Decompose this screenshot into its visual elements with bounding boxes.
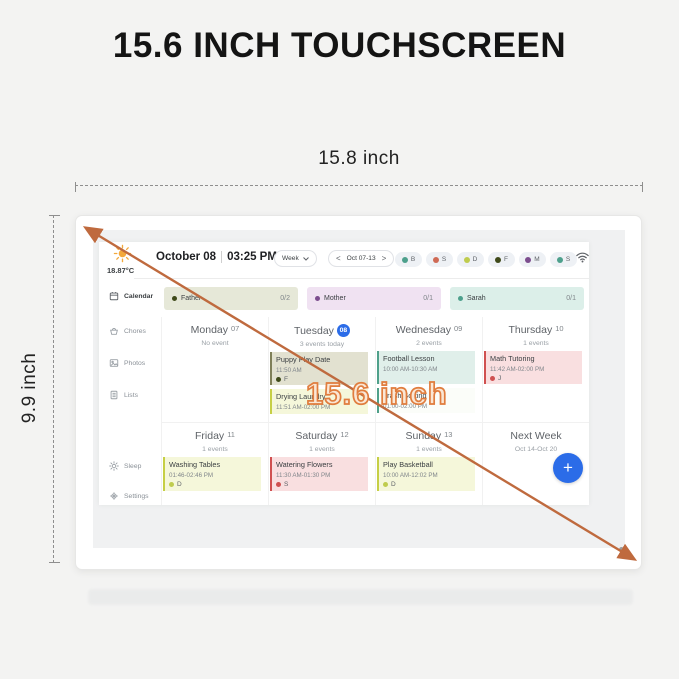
avatar-label: M bbox=[534, 256, 539, 263]
event-card[interactable]: Play Basketball 10:00 AM-12:02 PM D bbox=[377, 457, 475, 491]
sun-weather-icon bbox=[113, 244, 132, 263]
filter-chip-father[interactable]: Father 0/2 bbox=[164, 287, 298, 310]
member-color-dot bbox=[464, 257, 470, 263]
avatar[interactable]: S bbox=[550, 252, 577, 267]
event-title: Play Basketball bbox=[383, 460, 471, 469]
sidebar-item-label: Sleep bbox=[124, 463, 141, 470]
event-time: 10:00 AM-12:02 PM bbox=[383, 472, 471, 479]
sidebar-item-label: Calendar bbox=[124, 293, 153, 300]
basket-icon bbox=[109, 326, 119, 336]
member-color-dot bbox=[402, 257, 408, 263]
next-week-label: Next Week bbox=[510, 430, 561, 442]
day-summary: 2 events bbox=[376, 340, 482, 347]
brightness-icon bbox=[109, 461, 119, 471]
day-name: Tuesday bbox=[294, 325, 334, 337]
day-name: Thursday bbox=[508, 324, 552, 336]
day-number: 12 bbox=[340, 430, 348, 439]
tick bbox=[642, 182, 643, 192]
week-range-label: Oct 07-13 bbox=[347, 255, 376, 262]
member-color-dot bbox=[490, 376, 495, 381]
avatar-label: D bbox=[473, 256, 478, 263]
event-card[interactable]: Washing Tables 01:46-02:46 PM D bbox=[163, 457, 261, 491]
day-column-monday[interactable]: Monday07 No event bbox=[161, 317, 268, 422]
day-number: 10 bbox=[555, 324, 563, 333]
avatar-label: F bbox=[504, 256, 508, 263]
day-column-thursday[interactable]: Thursday10 1 events Math Tutoring 11:42 … bbox=[482, 317, 589, 422]
event-title: Football Lesson bbox=[383, 354, 471, 363]
event-time: 11:42 AM-02:00 PM bbox=[490, 366, 578, 373]
day-number: 09 bbox=[454, 324, 462, 333]
sidebar-item-sleep[interactable]: Sleep bbox=[109, 461, 141, 471]
current-time: 03:25 PM bbox=[227, 251, 277, 263]
event-time: 01:46-02:46 PM bbox=[169, 472, 257, 479]
sidebar-item-chores[interactable]: Chores bbox=[109, 326, 146, 336]
day-summary: 1 events bbox=[376, 446, 482, 453]
member-color-dot bbox=[495, 257, 501, 263]
filter-count: 0/1 bbox=[566, 295, 576, 302]
member-color-dot bbox=[433, 257, 439, 263]
member-color-dot bbox=[383, 482, 388, 487]
calendar-app-screen: 18.87°C October 08 03:25 PM Week < Oct 0… bbox=[99, 242, 589, 505]
filter-chip-sarah[interactable]: Sarah 0/1 bbox=[450, 287, 584, 310]
sidebar-item-label: Photos bbox=[124, 360, 145, 367]
event-person: J bbox=[498, 375, 501, 382]
day-number: 11 bbox=[227, 430, 235, 439]
height-dimension-label: 9.9 inch bbox=[19, 353, 41, 424]
sidebar-item-settings[interactable]: Settings bbox=[109, 491, 149, 501]
day-summary: 1 events bbox=[162, 446, 268, 453]
day-column-saturday[interactable]: Saturday12 1 events Watering Flowers 11:… bbox=[268, 423, 375, 505]
page-title: 15.6 INCH TOUCHSCREEN bbox=[0, 26, 679, 66]
event-card[interactable]: Watering Flowers 11:30 AM-01:30 PM S bbox=[270, 457, 368, 491]
day-number: 13 bbox=[444, 430, 452, 439]
member-color-dot bbox=[315, 296, 320, 301]
day-column-friday[interactable]: Friday11 1 events Washing Tables 01:46-0… bbox=[161, 423, 268, 505]
member-color-dot bbox=[169, 482, 174, 487]
event-time: 10:00 AM-10:30 AM bbox=[383, 366, 471, 373]
sidebar-item-calendar[interactable]: Calendar bbox=[109, 291, 153, 301]
day-summary: 3 events today bbox=[269, 341, 375, 348]
view-selector-value: Week bbox=[282, 255, 299, 262]
member-color-dot bbox=[557, 257, 563, 263]
day-name: Friday bbox=[195, 430, 224, 442]
day-summary: 1 events bbox=[269, 446, 375, 453]
avatar-label: S bbox=[566, 256, 570, 263]
gear-icon bbox=[109, 491, 119, 501]
member-color-dot bbox=[525, 257, 531, 263]
day-name: Wednesday bbox=[396, 324, 451, 336]
chevron-down-icon bbox=[303, 257, 309, 261]
day-name: Saturday bbox=[295, 430, 337, 442]
camera-dot bbox=[619, 547, 624, 552]
avatar[interactable]: D bbox=[457, 252, 484, 267]
diagonal-dimension-label: 15.6 inch bbox=[306, 376, 448, 412]
member-color-dot bbox=[276, 482, 281, 487]
filter-count: 0/1 bbox=[423, 295, 433, 302]
member-color-dot bbox=[458, 296, 463, 301]
avatar-label: S bbox=[442, 256, 446, 263]
day-summary: No event bbox=[162, 340, 268, 347]
day-number: 07 bbox=[231, 324, 239, 333]
surface-reflection bbox=[88, 589, 633, 605]
height-dimension-line bbox=[53, 215, 54, 563]
wifi-icon bbox=[576, 252, 589, 263]
day-summary: 1 events bbox=[483, 340, 589, 347]
sidebar-item-label: Lists bbox=[124, 392, 138, 399]
calendar-icon bbox=[109, 291, 119, 301]
divider bbox=[221, 251, 222, 263]
event-person: D bbox=[177, 481, 182, 488]
sidebar-item-label: Chores bbox=[124, 328, 146, 335]
filter-name: Mother bbox=[324, 295, 346, 302]
current-date: October 08 bbox=[156, 251, 216, 263]
event-title: Puppy Play Date bbox=[276, 355, 364, 364]
tick bbox=[75, 182, 76, 192]
temperature-readout: 18.87°C bbox=[107, 266, 134, 275]
event-person: F bbox=[284, 376, 288, 383]
prev-week-button[interactable]: < bbox=[336, 254, 341, 263]
avatar[interactable]: B bbox=[395, 252, 422, 267]
next-week-column[interactable]: Next Week Oct 14-Oct 20 + bbox=[482, 423, 589, 505]
event-title: Washing Tables bbox=[169, 460, 257, 469]
filter-count: 0/2 bbox=[280, 295, 290, 302]
week-range-navigator: < Oct 07-13 > bbox=[328, 250, 394, 267]
sidebar-item-label: Settings bbox=[124, 493, 149, 500]
view-selector-dropdown[interactable]: Week bbox=[274, 250, 317, 267]
add-event-button[interactable]: + bbox=[553, 453, 583, 483]
avatar-label: B bbox=[411, 256, 415, 263]
filter-chip-mother[interactable]: Mother 0/1 bbox=[307, 287, 441, 310]
day-name: Sunday bbox=[406, 430, 442, 442]
date-time: October 08 03:25 PM bbox=[156, 251, 277, 263]
filter-name: Father bbox=[181, 295, 201, 302]
event-person: D bbox=[391, 481, 396, 488]
avatar[interactable]: M bbox=[519, 252, 546, 267]
member-color-dot bbox=[276, 377, 281, 382]
sidebar-item-lists[interactable]: Lists bbox=[109, 390, 138, 400]
next-week-range: Oct 14-Oct 20 bbox=[483, 446, 589, 453]
photo-icon bbox=[109, 358, 119, 368]
event-time: 11:50 AM bbox=[276, 367, 364, 374]
next-week-button[interactable]: > bbox=[382, 254, 387, 263]
list-icon bbox=[109, 390, 119, 400]
tick bbox=[49, 562, 60, 563]
width-dimension-label: 15.8 inch bbox=[75, 148, 643, 170]
today-badge: 08 bbox=[337, 324, 350, 337]
event-card[interactable]: Math Tutoring 11:42 AM-02:00 PM J bbox=[484, 351, 582, 384]
avatar[interactable]: S bbox=[426, 252, 453, 267]
tick bbox=[49, 215, 60, 216]
member-avatars: B S D F M S bbox=[395, 252, 577, 267]
event-time: 11:30 AM-01:30 PM bbox=[276, 472, 364, 479]
day-name: Monday bbox=[191, 324, 228, 336]
event-title: Math Tutoring bbox=[490, 354, 578, 363]
header-divider bbox=[134, 278, 589, 279]
width-dimension-line bbox=[75, 185, 643, 186]
avatar[interactable]: F bbox=[488, 252, 515, 267]
event-title: Watering Flowers bbox=[276, 460, 364, 469]
event-person: S bbox=[284, 481, 288, 488]
day-column-sunday[interactable]: Sunday13 1 events Play Basketball 10:00 … bbox=[375, 423, 482, 505]
sidebar-item-photos[interactable]: Photos bbox=[109, 358, 145, 368]
member-filter-row: Father 0/2 Mother 0/1 Sarah 0/1 bbox=[164, 287, 584, 310]
member-color-dot bbox=[172, 296, 177, 301]
filter-name: Sarah bbox=[467, 295, 486, 302]
